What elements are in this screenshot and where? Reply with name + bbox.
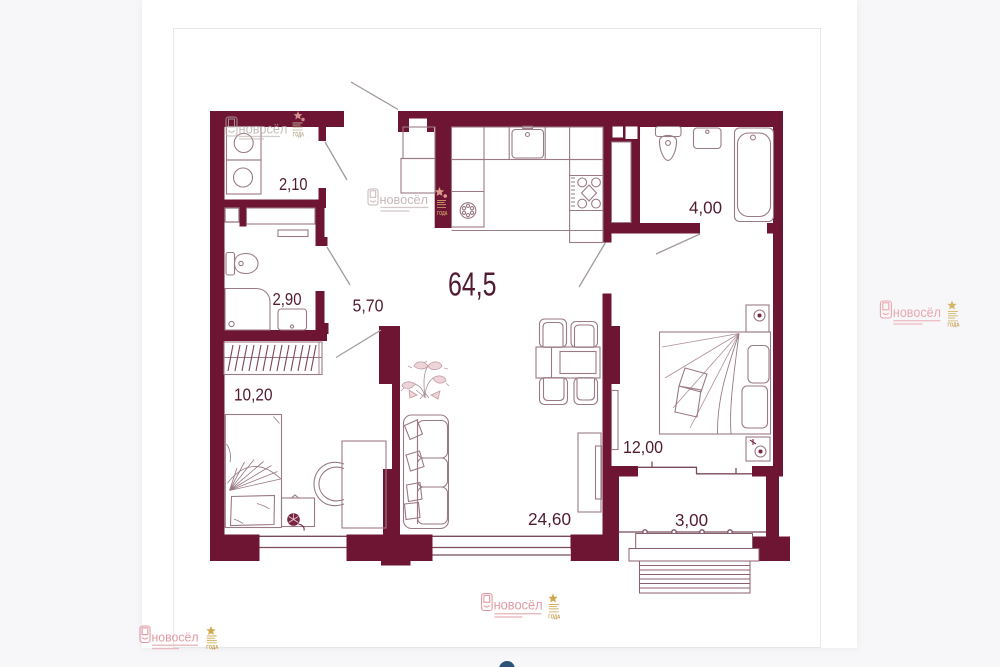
svg-text:новосёл: новосёл	[494, 598, 543, 613]
svg-text:3,00: 3,00	[675, 510, 708, 530]
svg-text:4,00: 4,00	[689, 198, 722, 218]
svg-text:новосёл: новосёл	[152, 630, 199, 645]
svg-text:ГОДА: ГОДА	[437, 211, 448, 217]
svg-text:новосёл: новосёл	[380, 193, 429, 207]
svg-text:2,10: 2,10	[279, 174, 308, 194]
svg-text:новосёл: новосёл	[893, 305, 941, 320]
svg-text:64,5: 64,5	[448, 266, 497, 303]
svg-text:2,90: 2,90	[273, 289, 302, 309]
svg-text:10,20: 10,20	[234, 385, 273, 405]
svg-text:новосёл: новосёл	[239, 122, 288, 137]
svg-text:ГОДА: ГОДА	[948, 322, 961, 328]
svg-text:ГОДА: ГОДА	[548, 615, 561, 621]
svg-text:5,70: 5,70	[353, 296, 384, 316]
svg-text:ГОДА: ГОДА	[206, 645, 219, 651]
svg-text:12,00: 12,00	[623, 437, 663, 457]
svg-text:24,60: 24,60	[528, 509, 571, 529]
svg-text:ГОДА: ГОДА	[293, 133, 304, 139]
